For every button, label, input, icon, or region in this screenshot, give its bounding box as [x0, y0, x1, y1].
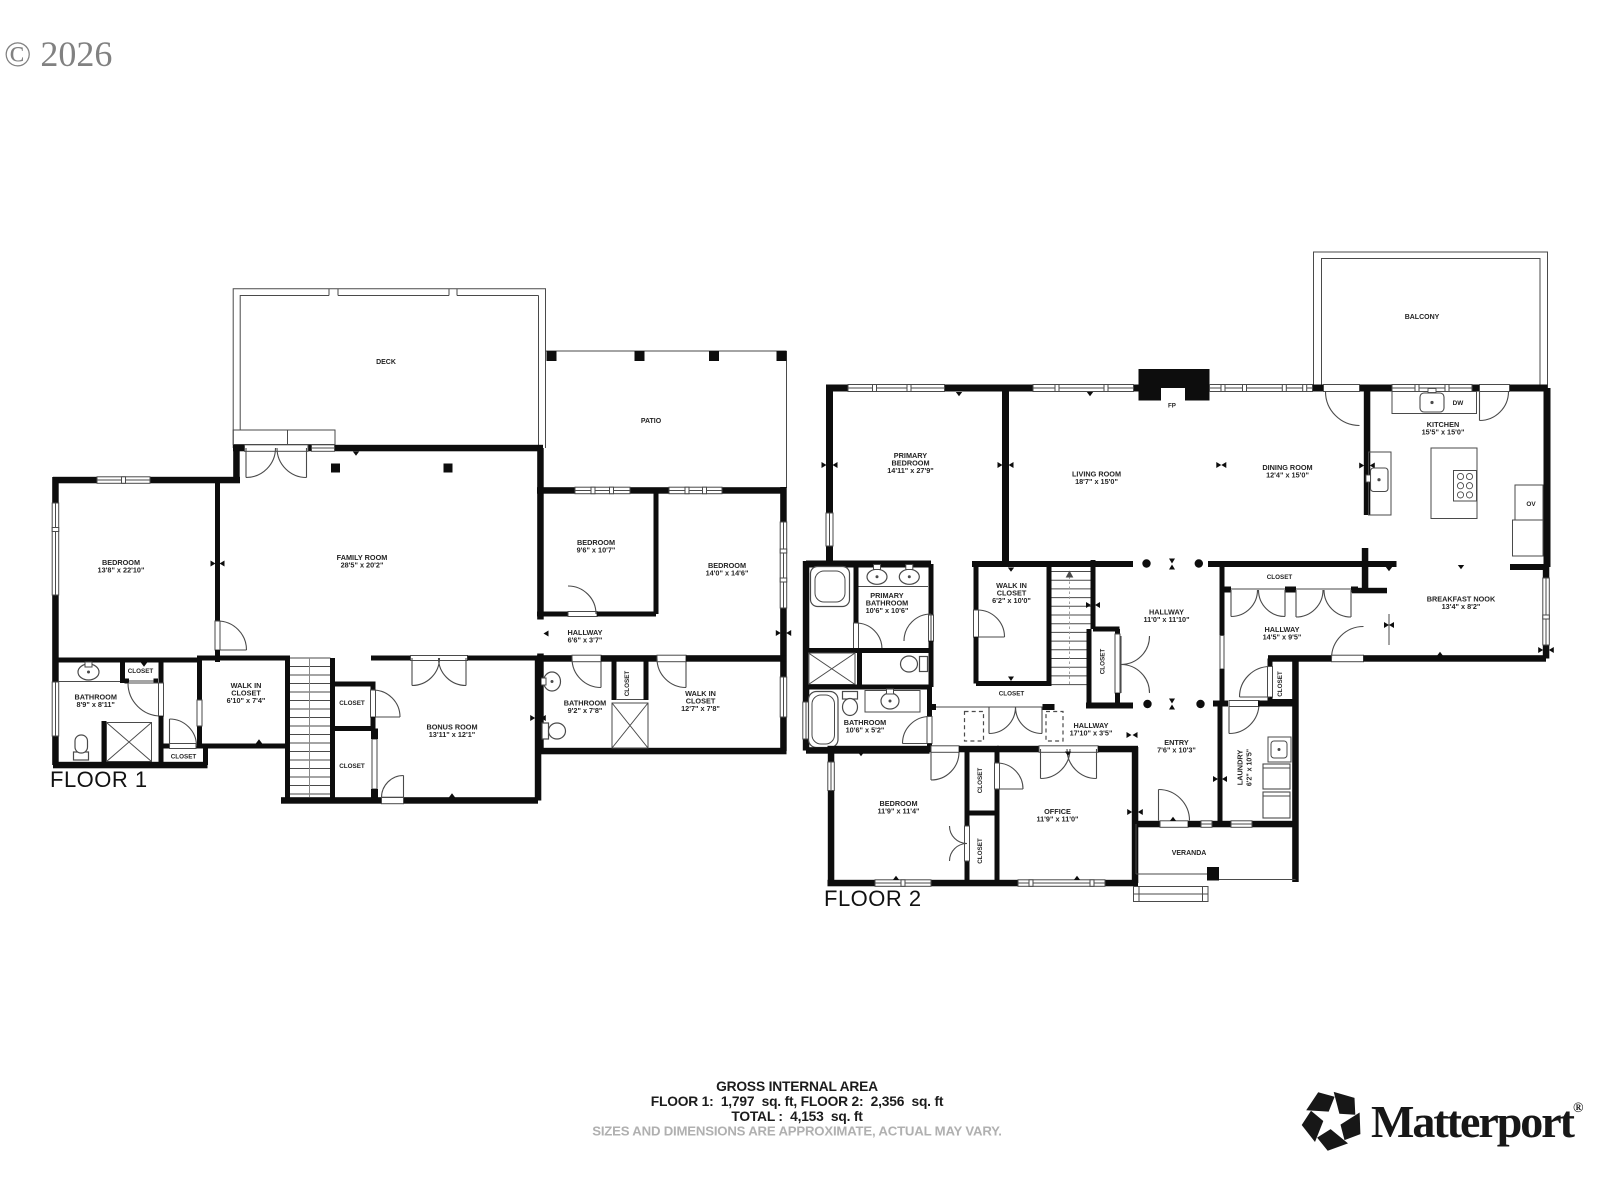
svg-text:BALCONY: BALCONY: [1405, 314, 1440, 321]
svg-text:12'4" x 15'0": 12'4" x 15'0": [1266, 471, 1309, 480]
svg-text:FP: FP: [1168, 403, 1176, 410]
svg-text:12'7" x 7'8": 12'7" x 7'8": [681, 704, 720, 713]
svg-text:LAUNDRY: LAUNDRY: [1236, 750, 1245, 786]
svg-text:CLOSET: CLOSET: [999, 691, 1025, 698]
svg-text:9'6" x 10'7": 9'6" x 10'7": [577, 546, 616, 555]
svg-text:7'6" x 10'3": 7'6" x 10'3": [1157, 746, 1196, 755]
svg-text:11'9" x 11'0": 11'9" x 11'0": [1036, 815, 1078, 824]
svg-text:10'6" x 10'6": 10'6" x 10'6": [866, 606, 909, 615]
svg-text:© 2026: © 2026: [4, 34, 112, 74]
svg-text:10'6" x 5'2": 10'6" x 5'2": [846, 726, 885, 735]
svg-text:13'4" x 8'2": 13'4" x 8'2": [1442, 602, 1481, 611]
svg-text:6'2" x 10'0": 6'2" x 10'0": [992, 596, 1031, 605]
svg-text:6'6" x 3'7": 6'6" x 3'7": [568, 636, 603, 645]
svg-text:14'0" x 14'6": 14'0" x 14'6": [706, 569, 749, 578]
svg-text:28'5" x 20'2": 28'5" x 20'2": [341, 561, 384, 570]
svg-text:CLOSET: CLOSET: [339, 763, 365, 770]
svg-text:CLOSET: CLOSET: [171, 754, 197, 761]
svg-text:CLOSET: CLOSET: [1100, 649, 1107, 675]
svg-text:TOTAL : 4,153 sq. ft: TOTAL : 4,153 sq. ft: [731, 1109, 863, 1124]
svg-text:GROSS INTERNAL AREA: GROSS INTERNAL AREA: [716, 1079, 878, 1094]
svg-text:PATIO: PATIO: [641, 418, 662, 425]
svg-text:13'11" x 12'1": 13'11" x 12'1": [429, 730, 476, 739]
svg-text:CLOSET: CLOSET: [977, 768, 984, 794]
svg-text:SIZES AND DIMENSIONS ARE APPRO: SIZES AND DIMENSIONS ARE APPROXIMATE, AC…: [592, 1124, 1002, 1139]
svg-text:8'9" x 8'11": 8'9" x 8'11": [77, 700, 115, 709]
svg-text:18'7" x 15'0": 18'7" x 15'0": [1075, 477, 1118, 486]
svg-text:DW: DW: [1453, 400, 1465, 407]
svg-text:OV: OV: [1526, 501, 1536, 508]
svg-text:®: ®: [1573, 1101, 1584, 1116]
svg-text:11'0" x 11'10": 11'0" x 11'10": [1143, 615, 1189, 624]
svg-text:14'11" x 27'9": 14'11" x 27'9": [887, 466, 934, 475]
svg-text:FLOOR 1: 1,797 sq. ft, FLOOR: FLOOR 1: 1,797 sq. ft, FLOOR 2: 2,356 sq…: [651, 1094, 944, 1109]
svg-text:CLOSET: CLOSET: [1267, 574, 1293, 581]
svg-text:14'5" x 9'5": 14'5" x 9'5": [1263, 633, 1302, 642]
svg-text:Matterport: Matterport: [1371, 1096, 1576, 1147]
svg-text:CLOSET: CLOSET: [1277, 671, 1284, 697]
svg-text:17'10" x 3'5": 17'10" x 3'5": [1070, 729, 1113, 738]
svg-text:CLOSET: CLOSET: [624, 671, 631, 697]
svg-text:CLOSET: CLOSET: [339, 700, 365, 707]
svg-text:VERANDA: VERANDA: [1172, 850, 1207, 857]
svg-text:6'10" x 7'4": 6'10" x 7'4": [227, 696, 266, 705]
svg-text:FLOOR 1: FLOOR 1: [50, 767, 148, 792]
svg-text:FLOOR 2: FLOOR 2: [824, 886, 922, 911]
svg-text:DECK: DECK: [376, 359, 396, 366]
svg-text:15'5" x 15'0": 15'5" x 15'0": [1422, 428, 1465, 437]
svg-text:6'2" x 10'5": 6'2" x 10'5": [1247, 749, 1254, 786]
svg-text:13'8" x 22'10": 13'8" x 22'10": [98, 566, 145, 575]
svg-text:9'2" x 7'8": 9'2" x 7'8": [568, 706, 603, 715]
svg-text:CLOSET: CLOSET: [128, 668, 154, 675]
svg-text:CLOSET: CLOSET: [977, 838, 984, 864]
svg-text:11'9" x 11'4": 11'9" x 11'4": [877, 807, 919, 816]
